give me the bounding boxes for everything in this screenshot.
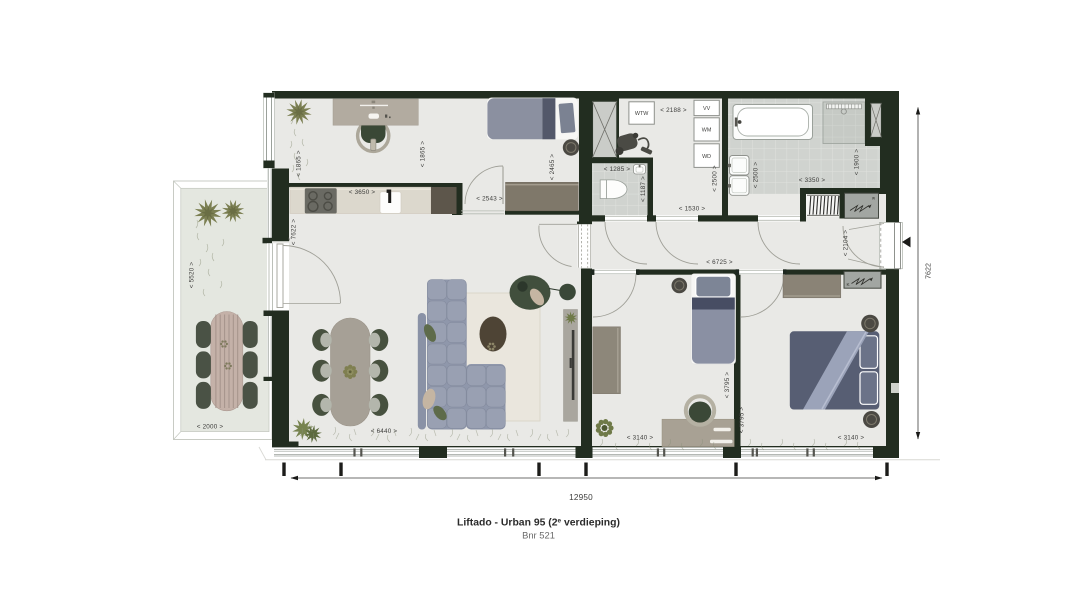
svg-text:WTW: WTW xyxy=(635,111,649,117)
svg-text:< 3650 >: < 3650 > xyxy=(349,189,376,196)
svg-text:< 2500 >: < 2500 > xyxy=(753,162,760,189)
svg-text:WD: WD xyxy=(702,154,711,160)
svg-text:Bnr 521: Bnr 521 xyxy=(522,530,555,541)
svg-text:< 2000 >: < 2000 > xyxy=(197,424,224,431)
svg-text:< 1187 >: < 1187 > xyxy=(640,176,647,202)
svg-text:< 6440 >: < 6440 > xyxy=(371,428,398,435)
svg-text:7622: 7622 xyxy=(924,263,933,279)
svg-text:< 3140 >: < 3140 > xyxy=(838,435,865,442)
svg-text:< 3350 >: < 3350 > xyxy=(799,177,826,184)
svg-text:< 1900 >: < 1900 > xyxy=(854,149,861,176)
svg-text:WM: WM xyxy=(702,128,712,134)
svg-text:< 1865 >: < 1865 > xyxy=(296,150,303,177)
svg-text:< 2188 >: < 2188 > xyxy=(660,107,687,114)
svg-text:< 2104 >: < 2104 > xyxy=(842,230,849,257)
svg-text:< 1865 >: < 1865 > xyxy=(420,141,427,168)
svg-text:< 1285 >: < 1285 > xyxy=(604,166,631,173)
svg-text:< 2500 >: < 2500 > xyxy=(712,165,719,192)
svg-text:< 1530 >: < 1530 > xyxy=(679,205,706,212)
svg-text:< 3795 >: < 3795 > xyxy=(739,407,746,434)
svg-text:< 3140 >: < 3140 > xyxy=(627,435,654,442)
svg-text:< 2543 >: < 2543 > xyxy=(476,196,503,203)
svg-text:< 7622 >: < 7622 > xyxy=(291,219,298,246)
svg-text:< 2465 >: < 2465 > xyxy=(549,154,556,181)
svg-text:VV: VV xyxy=(703,106,711,112)
svg-text:< 3795 >: < 3795 > xyxy=(724,372,731,399)
svg-text:< 5520 >: < 5520 > xyxy=(189,262,196,289)
svg-text:< 6725 >: < 6725 > xyxy=(706,259,733,266)
svg-text:Liftado - Urban 95 (2e verdiep: Liftado - Urban 95 (2e verdieping) xyxy=(457,518,620,529)
svg-text:12950: 12950 xyxy=(569,493,593,502)
